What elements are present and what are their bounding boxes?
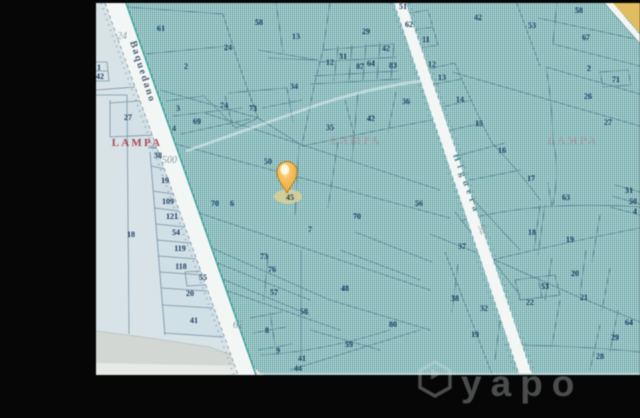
svg-text:48: 48 — [341, 284, 349, 293]
svg-text:3: 3 — [176, 104, 180, 113]
svg-text:13: 13 — [292, 32, 300, 41]
svg-text:21: 21 — [580, 293, 588, 302]
svg-text:73: 73 — [249, 104, 257, 113]
svg-text:19: 19 — [471, 330, 479, 339]
svg-text:41: 41 — [298, 354, 306, 363]
svg-text:50: 50 — [264, 157, 272, 166]
svg-text:69: 69 — [193, 117, 201, 126]
svg-text:118: 118 — [175, 262, 187, 271]
svg-text:53: 53 — [541, 282, 549, 291]
svg-text:11: 11 — [422, 35, 430, 44]
svg-text:19: 19 — [566, 235, 574, 244]
svg-text:76: 76 — [268, 265, 276, 274]
svg-text:2: 2 — [184, 62, 188, 71]
svg-text:62: 62 — [233, 320, 243, 331]
svg-text:29: 29 — [362, 27, 370, 36]
svg-text:64: 64 — [367, 59, 375, 68]
svg-text:LAMPA: LAMPA — [548, 135, 599, 147]
svg-text:70: 70 — [211, 199, 219, 208]
svg-text:8: 8 — [265, 326, 269, 335]
svg-text:24: 24 — [224, 43, 232, 52]
svg-text:20: 20 — [571, 269, 579, 278]
svg-text:9: 9 — [276, 346, 280, 355]
svg-text:31: 31 — [625, 186, 633, 195]
svg-text:1: 1 — [97, 63, 101, 72]
svg-text:LAMPA: LAMPA — [331, 135, 382, 147]
svg-text:18: 18 — [528, 228, 536, 237]
svg-text:80: 80 — [389, 320, 397, 329]
svg-text:19: 19 — [161, 176, 169, 185]
svg-text:12: 12 — [428, 60, 436, 69]
svg-text:12: 12 — [326, 58, 334, 67]
svg-text:15: 15 — [475, 119, 483, 128]
svg-text:58: 58 — [255, 18, 263, 27]
svg-text:16: 16 — [498, 146, 506, 155]
svg-text:119: 119 — [174, 244, 186, 253]
svg-text:83: 83 — [389, 61, 397, 70]
svg-text:26: 26 — [584, 92, 592, 101]
svg-text:56: 56 — [415, 199, 423, 208]
svg-text:67: 67 — [582, 33, 590, 42]
svg-text:18: 18 — [127, 230, 135, 239]
svg-text:42: 42 — [96, 72, 104, 81]
svg-text:27: 27 — [604, 118, 612, 127]
svg-text:121: 121 — [166, 212, 178, 221]
svg-text:27: 27 — [124, 113, 132, 122]
svg-text:38: 38 — [451, 294, 459, 303]
svg-text:LAMPA: LAMPA — [112, 137, 163, 149]
svg-text:13: 13 — [438, 73, 446, 82]
svg-text:109: 109 — [162, 197, 174, 206]
svg-text:7: 7 — [308, 225, 312, 234]
svg-text:63: 63 — [562, 193, 570, 202]
svg-text:87: 87 — [356, 62, 364, 71]
svg-text:41: 41 — [190, 316, 198, 325]
svg-text:64: 64 — [625, 318, 633, 327]
svg-text:17: 17 — [527, 174, 535, 183]
svg-text:57: 57 — [270, 288, 278, 297]
svg-text:31: 31 — [339, 52, 347, 61]
svg-text:59: 59 — [345, 340, 353, 349]
svg-text:44: 44 — [294, 364, 302, 373]
svg-text:58: 58 — [300, 307, 308, 316]
svg-text:50: 50 — [629, 197, 637, 206]
svg-text:38: 38 — [154, 151, 162, 160]
svg-text:29: 29 — [611, 333, 619, 342]
svg-text:51: 51 — [399, 2, 407, 11]
svg-text:2: 2 — [587, 64, 591, 73]
svg-text:74: 74 — [220, 101, 228, 110]
svg-text:4: 4 — [172, 124, 176, 133]
svg-text:58: 58 — [575, 6, 583, 15]
svg-text:14: 14 — [456, 95, 464, 104]
svg-text:34: 34 — [290, 82, 298, 91]
svg-text:45: 45 — [286, 193, 294, 202]
svg-text:35: 35 — [326, 123, 334, 132]
svg-text:61: 61 — [157, 24, 165, 33]
svg-text:36: 36 — [402, 97, 410, 106]
svg-text:42: 42 — [474, 13, 482, 22]
svg-text:71: 71 — [612, 75, 620, 84]
svg-text:55: 55 — [199, 273, 207, 282]
svg-text:54: 54 — [172, 228, 180, 237]
svg-text:6: 6 — [230, 199, 234, 208]
svg-text:4: 4 — [633, 207, 637, 216]
svg-text:32: 32 — [480, 304, 488, 313]
svg-text:24: 24 — [117, 31, 127, 42]
svg-text:28: 28 — [596, 352, 604, 361]
svg-text:62: 62 — [405, 20, 413, 29]
svg-text:42: 42 — [382, 44, 390, 53]
svg-text:yapo: yapo — [461, 363, 583, 404]
svg-text:20: 20 — [186, 289, 194, 298]
svg-text:53: 53 — [528, 21, 536, 30]
svg-text:22: 22 — [526, 298, 534, 307]
svg-text:42: 42 — [367, 114, 375, 123]
svg-text:73: 73 — [260, 252, 268, 261]
svg-text:37: 37 — [458, 242, 466, 251]
svg-text:70: 70 — [353, 212, 361, 221]
svg-text:500: 500 — [162, 155, 177, 166]
